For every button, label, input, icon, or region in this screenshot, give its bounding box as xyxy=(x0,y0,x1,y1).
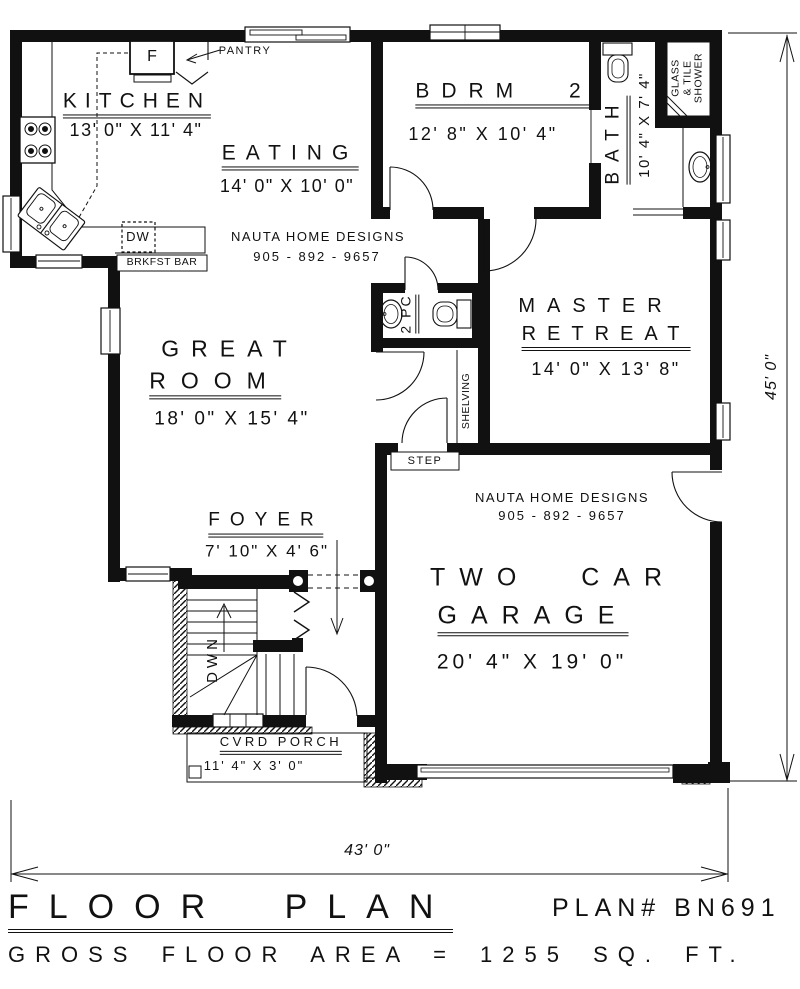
powder-toilet-symbol xyxy=(433,300,471,328)
master-label-1: MASTER xyxy=(518,295,673,317)
great-room-label-1: GREAT xyxy=(161,336,299,361)
door-garage-step xyxy=(402,398,447,443)
foyer-label: FOYER xyxy=(208,511,323,538)
depth-dimension-line xyxy=(728,33,797,781)
window-kitchen-west xyxy=(3,196,20,252)
window-greatroom-west xyxy=(101,308,120,354)
pantry-arrow xyxy=(187,50,220,63)
dishwasher-label: DW xyxy=(126,230,150,244)
porch-dims: 11' 4" X 3' 0" xyxy=(204,759,305,773)
branding-name-1: NAUTA HOME DESIGNS xyxy=(231,230,405,244)
kitchen-fixtures xyxy=(17,41,220,271)
door-bdrm2 xyxy=(390,167,433,210)
pantry-symbol xyxy=(176,41,208,84)
shower-label: GLASS & TILE SHOWER xyxy=(671,53,706,103)
great-room-dims: 18' 0" X 15' 4" xyxy=(154,410,309,431)
window-master-east-2 xyxy=(716,403,730,440)
window-stair-south xyxy=(213,714,263,727)
bath-dims: 10' 4" X 7' 4" xyxy=(637,72,654,178)
upper-cabinet-dashed xyxy=(66,53,128,240)
garage-label-2: GARAGE xyxy=(438,602,629,636)
branding-name-2: NAUTA HOME DESIGNS xyxy=(475,491,649,505)
garage-label-1: TWO CAR xyxy=(430,564,676,592)
door-master xyxy=(484,219,536,271)
foyer-dims: 7' 10" X 4' 6" xyxy=(205,543,329,562)
branding-phone-2: 905 - 892 - 9657 xyxy=(498,509,625,523)
stairs-down-label: DWN xyxy=(205,635,222,683)
door-front xyxy=(306,667,357,716)
window-top-bdrm2 xyxy=(430,25,500,40)
master-label-2: RETREAT xyxy=(522,323,691,351)
vanity-symbol xyxy=(683,128,711,207)
garage-door-symbol xyxy=(417,765,673,778)
door-powder xyxy=(405,257,438,290)
eating-label: EATING xyxy=(222,141,359,170)
gross-area: GROSS FLOOR AREA = 1255 SQ. FT. xyxy=(8,942,746,968)
bath-toilet-symbol xyxy=(603,43,632,82)
powder-fixtures xyxy=(380,300,471,328)
floor-plan-canvas: KITCHEN 13' 0" X 11' 4" EATING 14' 0" X … xyxy=(0,0,800,989)
window-master-east-1 xyxy=(716,220,730,260)
bdrm2-label: BDRM 2 xyxy=(415,79,592,108)
bdrm2-dims: 12' 8" X 10' 4" xyxy=(408,125,557,145)
door-hall-step xyxy=(376,352,424,400)
pantry-label: PANTRY xyxy=(219,45,272,57)
shelving-label: SHELVING xyxy=(461,373,473,429)
overall-width-dim: 43' 0" xyxy=(344,842,390,860)
closet-bifold-icon xyxy=(294,592,309,640)
plan-number: PLAN# BN691 xyxy=(552,894,781,923)
step-label: STEP xyxy=(408,455,443,467)
powder-label: 2 PC xyxy=(398,294,419,333)
fridge-label: F xyxy=(147,48,157,66)
kitchen-sink-symbol xyxy=(17,187,85,251)
breakfast-bar-label: BRKFST BAR xyxy=(127,257,198,269)
branding-phone-1: 905 - 892 - 9657 xyxy=(253,250,380,264)
bath-label: BATH xyxy=(604,95,631,184)
window-foyer-south xyxy=(126,567,170,581)
door-garage-side xyxy=(672,472,722,522)
great-room-label-2: ROOM xyxy=(149,368,281,399)
garage-dims: 20' 4" X 19' 0" xyxy=(437,650,627,673)
kitchen-label: KITCHEN xyxy=(63,89,211,118)
entry-direction-arrow xyxy=(331,540,343,634)
window-top-eating xyxy=(245,27,350,42)
eating-dims: 14' 0" X 10' 0" xyxy=(220,177,354,197)
porch-label: CVRD PORCH xyxy=(220,735,342,755)
kitchen-dims: 13' 0" X 11' 4" xyxy=(70,121,203,141)
window-kitchen-south xyxy=(36,255,82,268)
floor-plan-drawing xyxy=(0,0,800,989)
page-title: FLOOR PLAN xyxy=(8,888,453,933)
master-dims: 14' 0" X 13' 8" xyxy=(531,360,680,380)
stove-symbol xyxy=(20,117,55,163)
overall-depth-dim: 45' 0" xyxy=(763,354,781,400)
width-dimension-line xyxy=(11,788,728,882)
window-bath-east xyxy=(716,135,730,203)
